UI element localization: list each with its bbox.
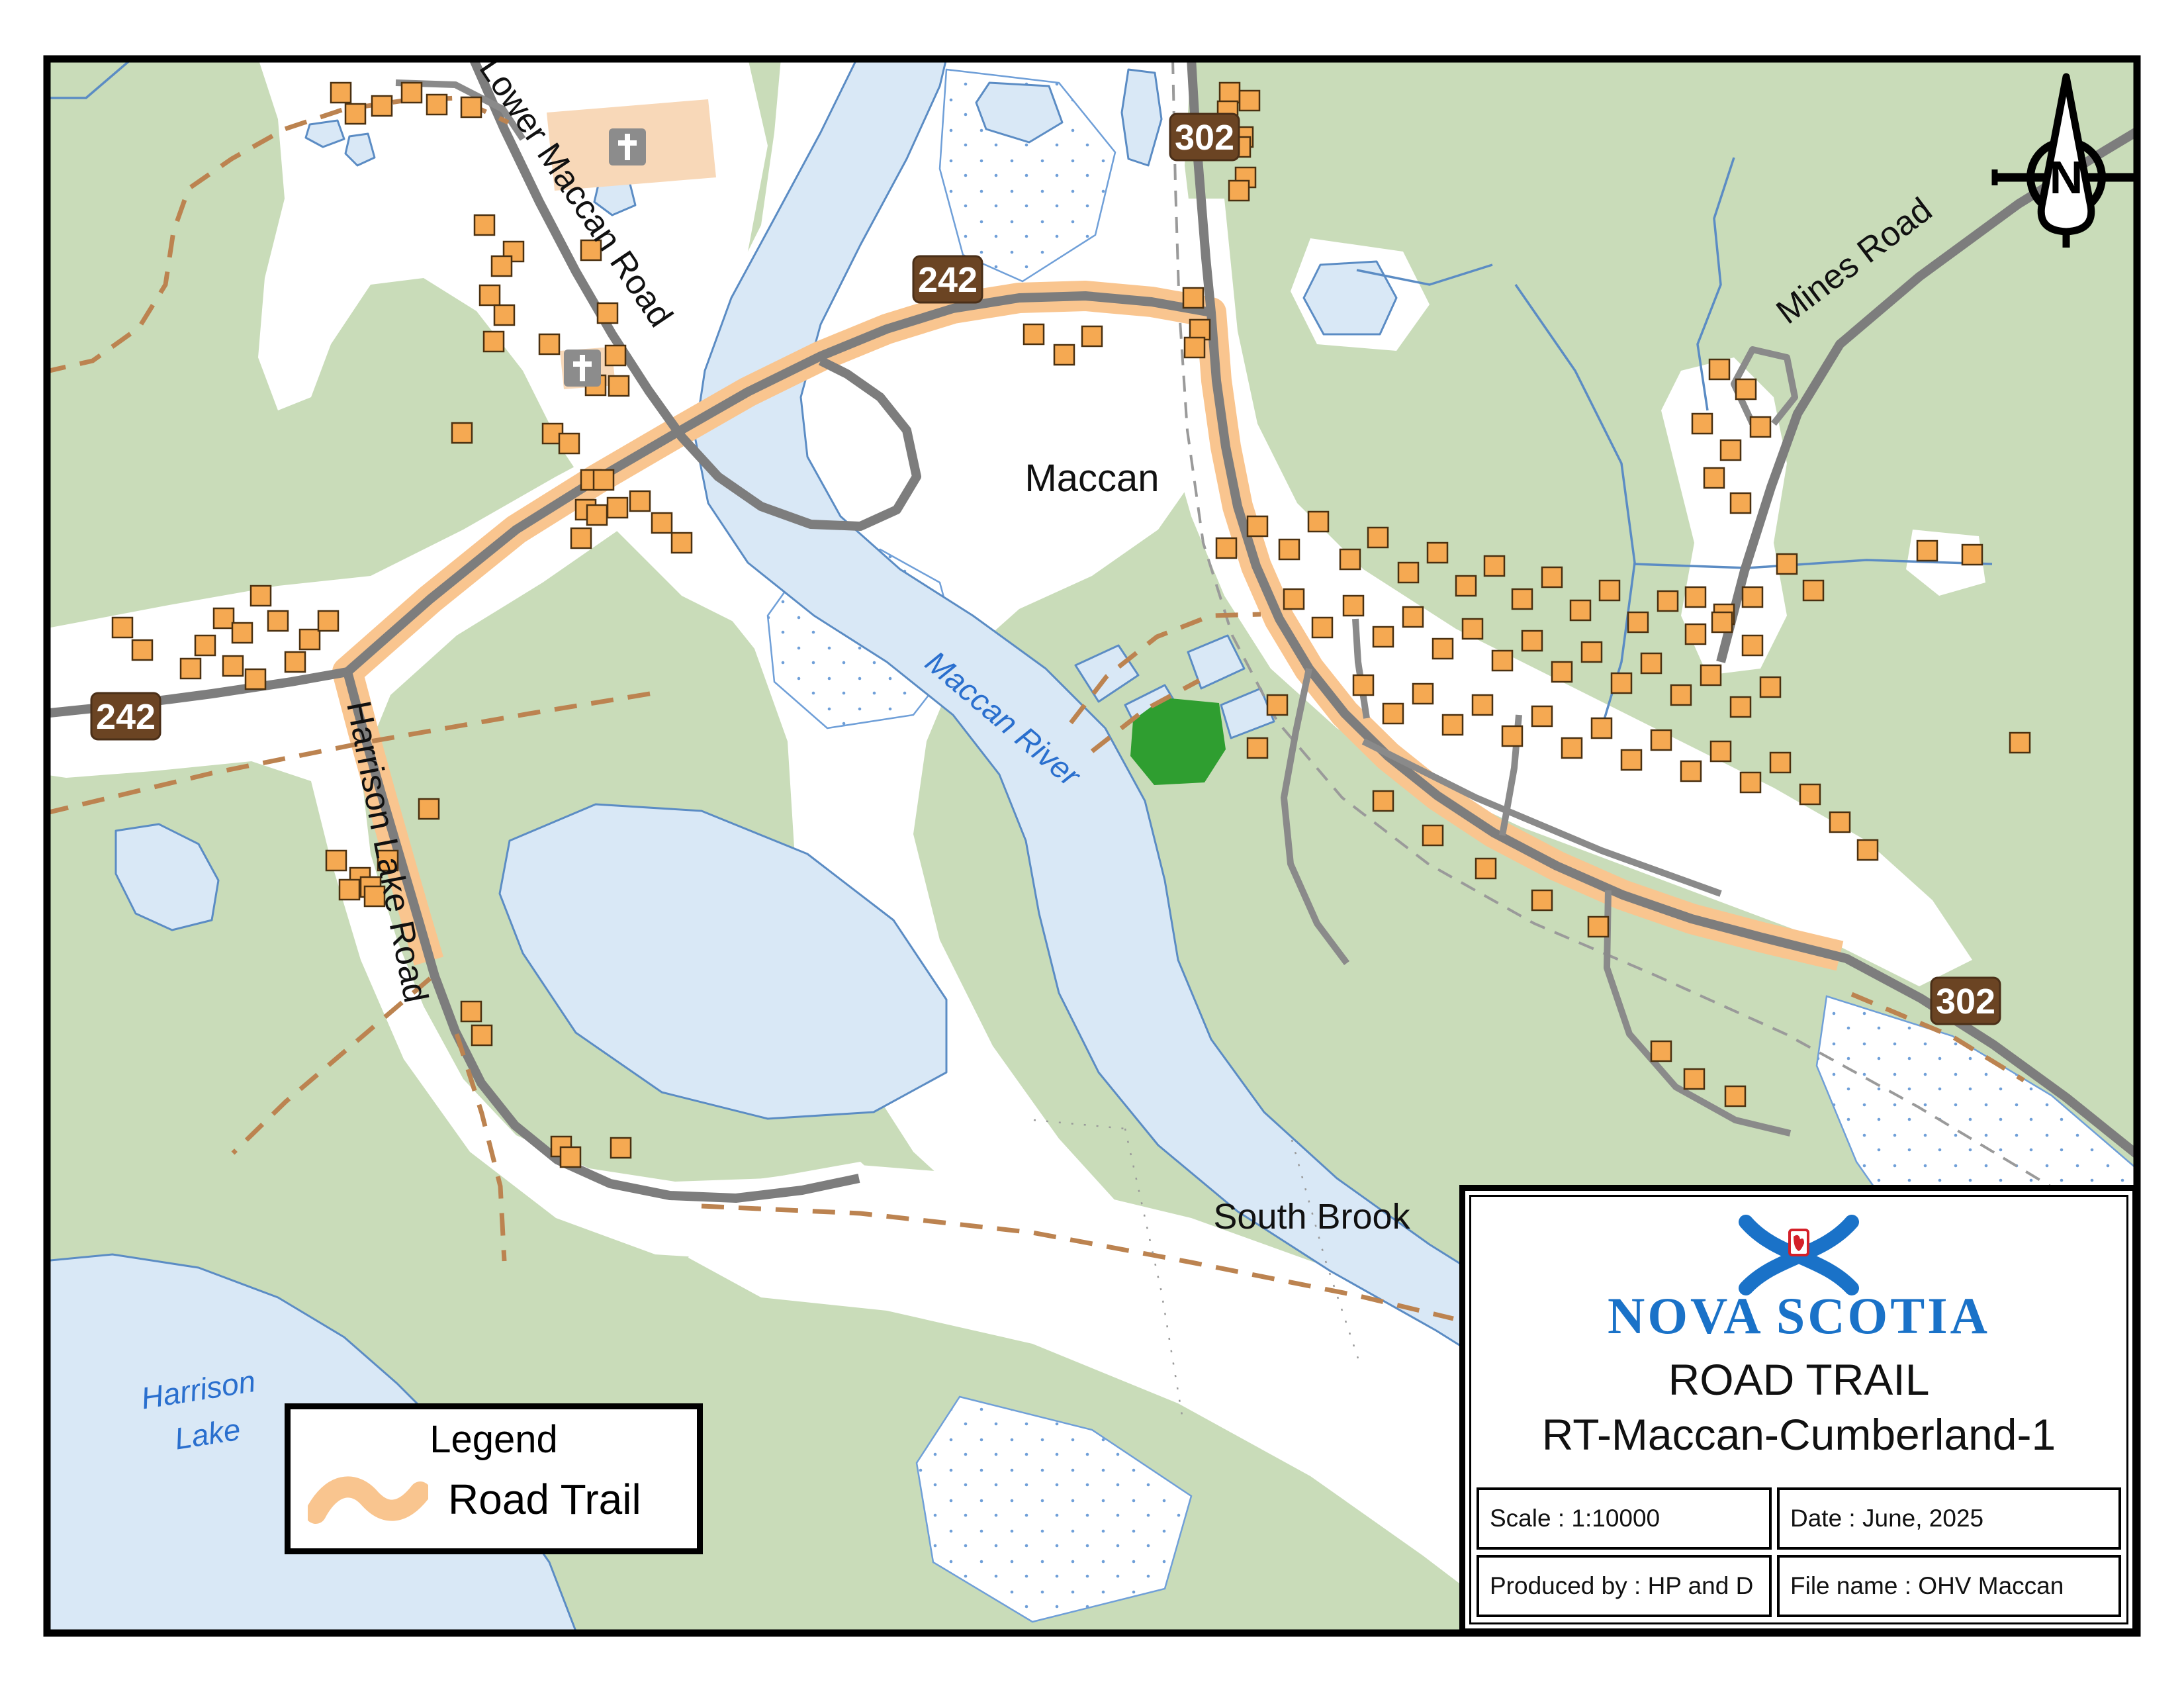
building — [1800, 784, 1820, 804]
building — [1600, 581, 1619, 600]
building — [1183, 288, 1203, 308]
svg-text:302: 302 — [1936, 982, 1995, 1021]
building — [1731, 493, 1751, 513]
building — [1712, 612, 1732, 632]
building — [1082, 326, 1102, 346]
route-shield: 242 — [91, 693, 160, 739]
building — [1709, 359, 1729, 379]
building — [1830, 812, 1850, 832]
building — [300, 630, 320, 649]
building — [1403, 607, 1423, 627]
building — [326, 851, 346, 870]
building — [2010, 733, 2030, 753]
building — [113, 618, 132, 637]
building — [539, 334, 559, 354]
building — [345, 104, 365, 124]
building — [571, 528, 591, 548]
legend-item-label: Road Trail — [448, 1475, 641, 1524]
building — [1024, 324, 1044, 344]
building — [1240, 91, 1259, 111]
building — [1612, 673, 1631, 693]
building — [1428, 543, 1447, 563]
building — [1731, 697, 1751, 717]
legend-title: Legend — [291, 1417, 697, 1462]
building — [1267, 695, 1287, 715]
building — [1628, 612, 1648, 632]
building — [1413, 684, 1433, 704]
scale-cell: Scale : 1:10000 — [1477, 1487, 1772, 1550]
building — [1917, 541, 1937, 561]
building — [1368, 528, 1388, 547]
building — [1353, 675, 1373, 695]
map-subtitle: RT-Maccan-Cumberland-1 — [1471, 1407, 2126, 1462]
building — [1721, 440, 1741, 460]
building — [480, 285, 500, 305]
road-trail-swatch-icon — [308, 1474, 428, 1525]
building — [1185, 338, 1205, 357]
svg-text:302: 302 — [1175, 118, 1234, 158]
building — [1725, 1086, 1745, 1106]
building — [1741, 773, 1760, 792]
building — [1398, 563, 1418, 583]
building — [1701, 665, 1721, 685]
building — [494, 305, 514, 325]
route-shield: 242 — [913, 256, 982, 303]
water-body — [1304, 261, 1396, 334]
building — [630, 491, 650, 511]
building — [419, 799, 439, 819]
svg-text:N: N — [2050, 152, 2083, 203]
building — [427, 95, 447, 115]
building — [340, 880, 359, 900]
building — [1229, 181, 1249, 201]
building — [587, 505, 607, 525]
building — [1777, 554, 1797, 574]
building — [1686, 587, 1706, 607]
building — [484, 332, 504, 352]
building — [461, 97, 481, 117]
building — [452, 423, 472, 443]
building — [232, 623, 252, 643]
building — [1803, 581, 1823, 600]
building — [1542, 567, 1562, 587]
svg-text:242: 242 — [918, 260, 978, 300]
building — [1502, 726, 1522, 746]
building — [1711, 741, 1731, 761]
building — [461, 1002, 481, 1021]
nova-scotia-logo: NOVA SCOTIA — [1471, 1203, 2126, 1352]
building — [1704, 468, 1724, 488]
building — [318, 611, 338, 631]
building — [268, 611, 288, 631]
building — [1248, 516, 1267, 536]
building — [1522, 631, 1542, 651]
building — [594, 470, 614, 490]
building — [372, 96, 392, 116]
building — [1312, 618, 1332, 637]
building — [492, 256, 512, 276]
building — [652, 513, 672, 533]
building — [1373, 627, 1393, 647]
date-cell: Date : June, 2025 — [1777, 1487, 2121, 1550]
building — [1054, 345, 1074, 365]
nova-scotia-flag-icon: NOVA SCOTIA — [1547, 1203, 2050, 1349]
building — [1456, 576, 1476, 596]
building — [672, 533, 692, 553]
building — [1220, 83, 1240, 103]
building — [1279, 539, 1299, 559]
building — [1641, 653, 1661, 673]
building — [402, 83, 422, 103]
building — [195, 635, 215, 655]
building — [1658, 591, 1678, 611]
route-shield: 302 — [1931, 978, 2000, 1024]
building — [1621, 750, 1641, 770]
title-block: NOVA SCOTIA ROAD TRAIL RT-Maccan-Cumberl… — [1459, 1185, 2138, 1634]
building — [1760, 677, 1780, 697]
building — [1463, 619, 1482, 639]
building — [1751, 417, 1770, 437]
building — [1651, 1041, 1671, 1061]
legend-box: Legend Road Trail — [285, 1403, 703, 1554]
building — [1248, 738, 1267, 758]
building — [1743, 587, 1762, 607]
building — [1686, 624, 1706, 644]
title-info-grid: Scale : 1:10000 Date : June, 2025 Produc… — [1471, 1482, 2126, 1622]
building — [1473, 695, 1492, 715]
building — [1736, 379, 1756, 399]
building — [1484, 556, 1504, 576]
file-name-cell: File name : OHV Maccan — [1777, 1555, 2121, 1617]
building — [1532, 890, 1552, 910]
building — [251, 586, 271, 606]
map-label: South Brook — [1213, 1197, 1410, 1237]
building — [606, 346, 625, 365]
produced-by-cell: Produced by : HP and D — [1477, 1555, 1772, 1617]
building — [1671, 685, 1691, 705]
building — [1512, 589, 1532, 609]
building — [181, 659, 201, 679]
title-block-inner: NOVA SCOTIA ROAD TRAIL RT-Maccan-Cumberl… — [1469, 1195, 2128, 1624]
building — [223, 656, 243, 676]
church-icon — [609, 128, 646, 165]
map-page: 242242302302MaccanSouth BrookLower Macca… — [0, 0, 2184, 1688]
building — [1592, 718, 1612, 738]
building — [475, 215, 494, 235]
building — [1433, 639, 1453, 659]
building — [1476, 859, 1496, 878]
building — [1858, 840, 1878, 860]
building — [1284, 589, 1304, 609]
building — [1216, 538, 1236, 558]
building — [1651, 730, 1671, 750]
svg-text:242: 242 — [96, 697, 156, 737]
building — [1532, 706, 1552, 726]
building — [1582, 642, 1602, 662]
building — [1190, 320, 1210, 340]
building — [1423, 825, 1443, 845]
building — [1562, 738, 1582, 758]
building — [1570, 600, 1590, 620]
building — [1308, 512, 1328, 532]
building — [1383, 704, 1403, 724]
building — [1373, 791, 1393, 811]
building — [561, 1147, 580, 1167]
building — [598, 303, 617, 323]
building — [1770, 753, 1790, 773]
building — [559, 434, 579, 453]
building — [472, 1025, 492, 1045]
building — [1743, 635, 1762, 655]
building — [331, 83, 351, 103]
building — [611, 1138, 631, 1158]
building — [132, 640, 152, 660]
building — [1340, 549, 1360, 569]
building — [1492, 651, 1512, 671]
building — [1552, 662, 1572, 682]
building — [1443, 715, 1463, 735]
nova-scotia-logo-text: NOVA SCOTIA — [1608, 1287, 1990, 1344]
church-icon — [564, 350, 601, 387]
building — [1684, 1069, 1704, 1089]
building — [609, 376, 629, 396]
building — [1343, 596, 1363, 616]
map-title: ROAD TRAIL — [1471, 1352, 2126, 1407]
building — [214, 608, 234, 628]
building — [1962, 545, 1982, 565]
building — [246, 669, 265, 689]
building — [285, 652, 305, 672]
building — [1681, 761, 1701, 781]
building — [1692, 414, 1712, 434]
building — [1588, 917, 1608, 937]
map-label: Maccan — [1024, 457, 1159, 500]
building — [608, 498, 627, 518]
route-shield: 302 — [1170, 114, 1239, 160]
